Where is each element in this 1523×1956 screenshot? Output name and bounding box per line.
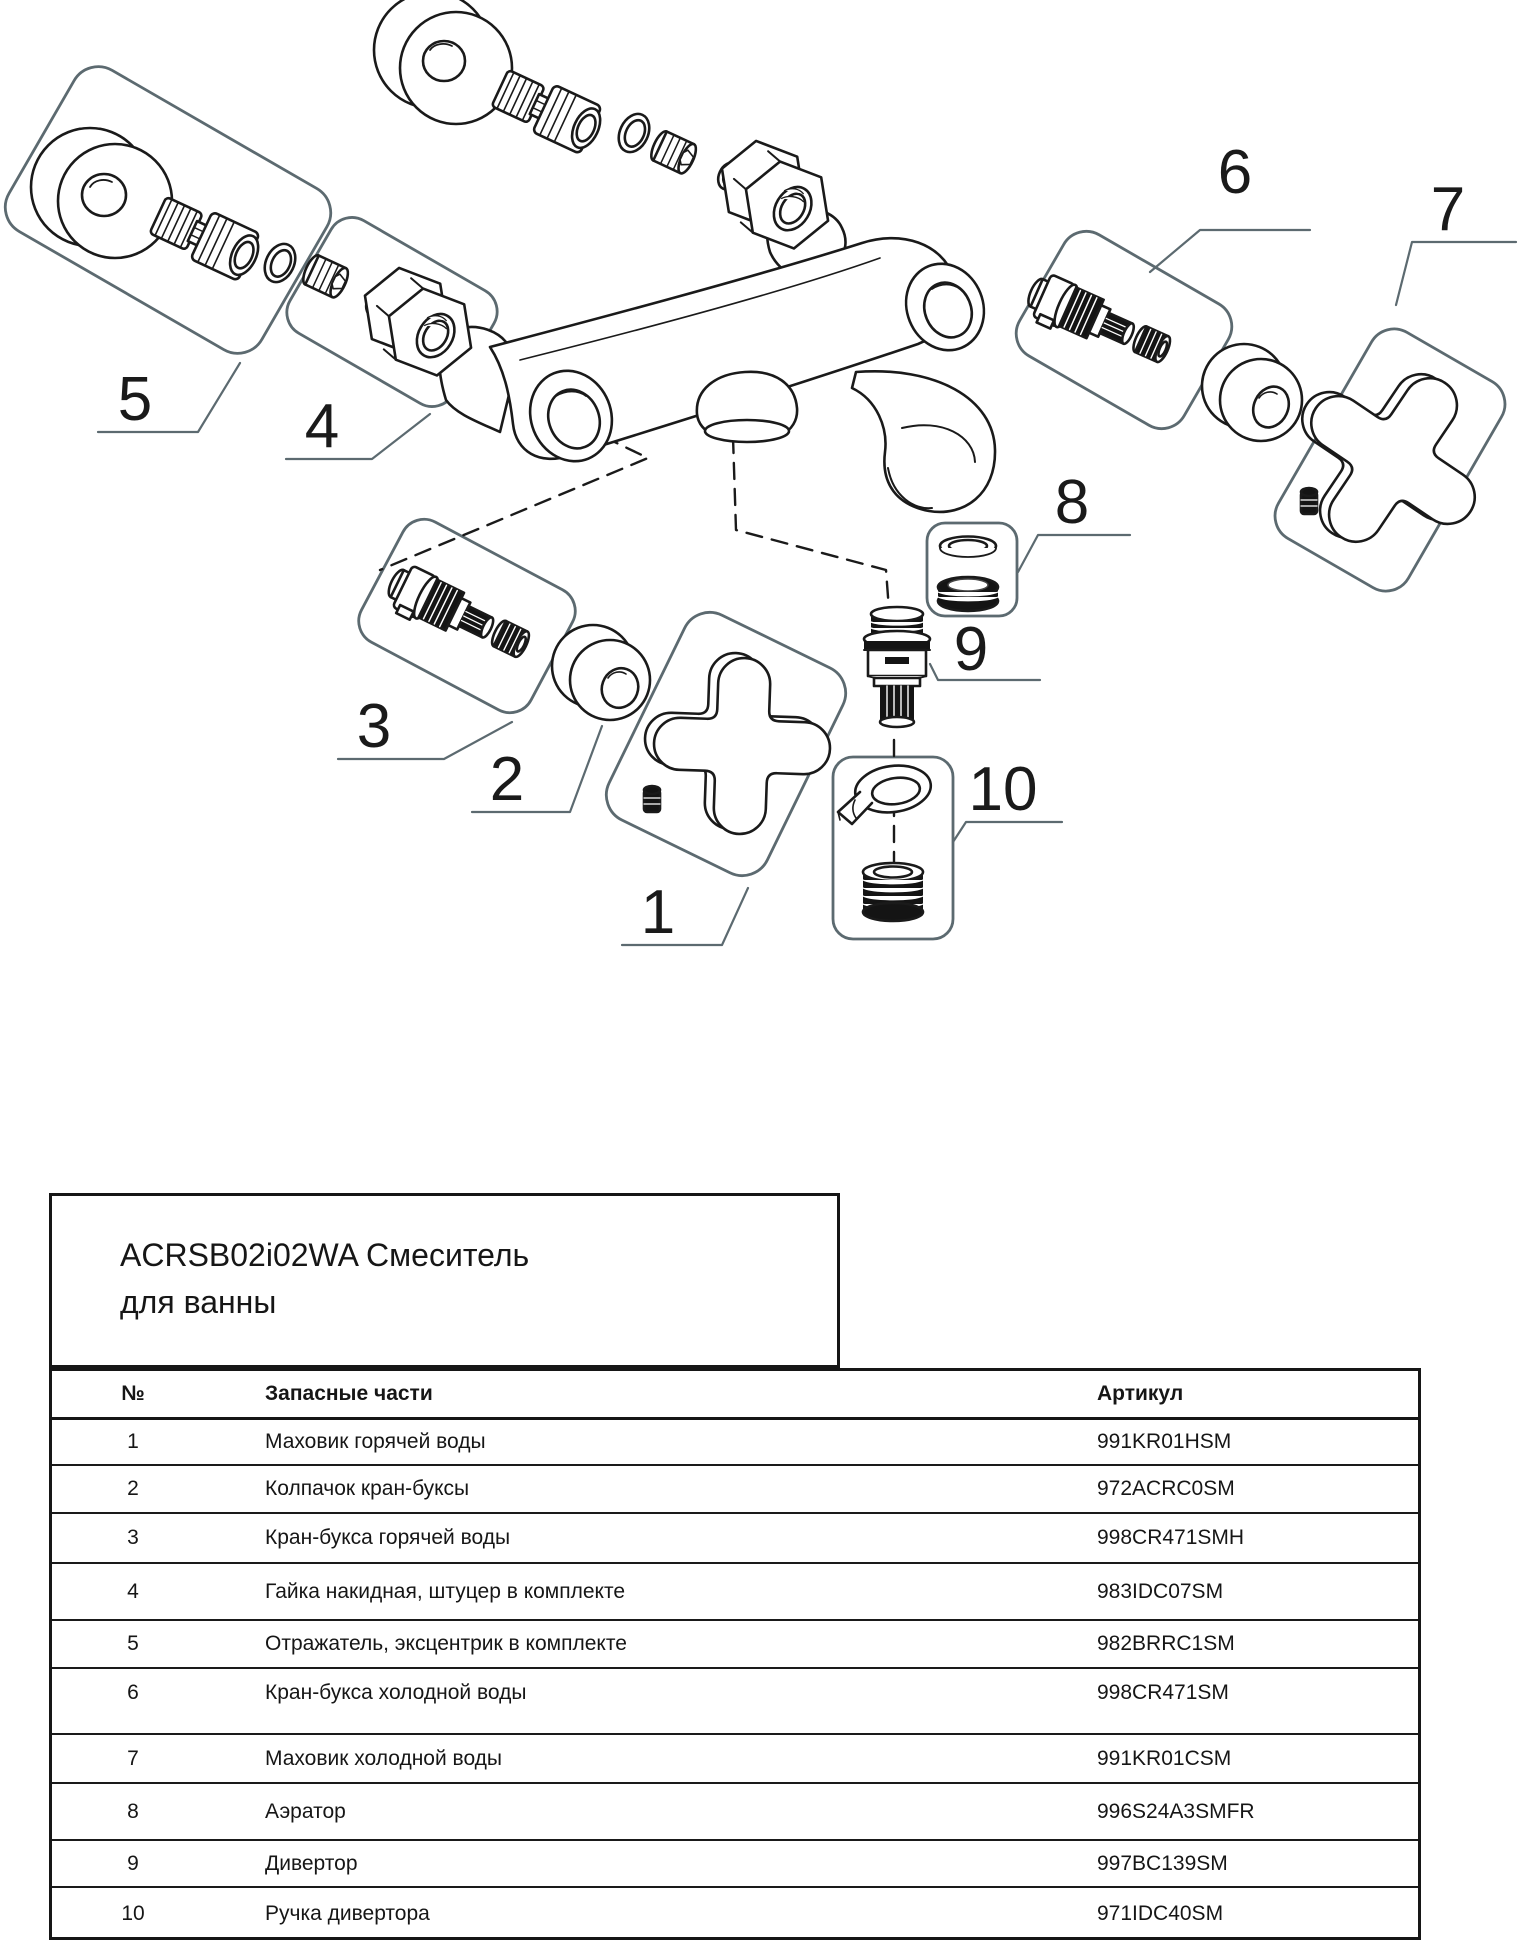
eccentric-5 <box>147 191 266 283</box>
diverter-handle <box>838 761 934 824</box>
table-row: 3 Кран-букса горячей воды 998CR471SMH <box>52 1512 1418 1562</box>
row-num: 5 <box>52 1632 214 1656</box>
spec-sheet-page: 1 2 3 4 5 6 7 8 9 10 ACRSB02i02WA Смесит… <box>0 0 1523 1956</box>
callout-10: 10 <box>969 755 1038 824</box>
table-row: 1 Маховик горячей воды 991KR01HSM <box>52 1417 1418 1464</box>
row-num: 6 <box>52 1669 214 1705</box>
table-row: 4 Гайка накидная, штуцер в комплекте 983… <box>52 1562 1418 1619</box>
gasket-top <box>613 109 655 157</box>
callout-2: 2 <box>490 745 524 814</box>
callout-7: 7 <box>1431 175 1465 244</box>
diverter-handle-group <box>838 761 934 921</box>
callout-6: 6 <box>1218 138 1252 207</box>
row-num: 10 <box>52 1902 214 1926</box>
callout-9: 9 <box>954 615 988 684</box>
handle-cold <box>1255 327 1522 589</box>
parts-table: № Запасные части Артикул 1 Маховик горяч… <box>49 1368 1421 1940</box>
table-row: 9 Дивертор 997BC139SM <box>52 1839 1418 1886</box>
escutcheon-5 <box>31 128 172 258</box>
row-num: 7 <box>52 1747 214 1771</box>
row-part: Маховик холодной воды <box>214 1747 1097 1771</box>
cartridge-hot <box>380 560 536 670</box>
cap-2 <box>552 625 650 720</box>
handle-screw-7 <box>1301 488 1317 514</box>
body-spout <box>852 371 995 512</box>
aerator <box>938 537 998 612</box>
row-part: Дивертор <box>214 1852 1097 1876</box>
row-sku: 972ACRC0SM <box>1097 1477 1418 1501</box>
cartridge-cold <box>1020 269 1176 375</box>
exploded-diagram: 1 2 3 4 5 6 7 8 9 10 <box>0 0 1523 1160</box>
row-part: Маховик горячей воды <box>214 1430 1097 1454</box>
table-row: 6 Кран-букса холодной воды 998CR471SM <box>52 1667 1418 1733</box>
eccentric-top <box>489 64 608 156</box>
row-num: 2 <box>52 1477 214 1501</box>
header-part: Запасные части <box>214 1382 1097 1406</box>
product-title-line2: для ванны <box>120 1279 837 1326</box>
row-sku: 983IDC07SM <box>1097 1580 1418 1604</box>
callout-5: 5 <box>118 365 152 434</box>
row-sku: 971IDC40SM <box>1097 1902 1418 1926</box>
row-part: Аэратор <box>214 1800 1097 1824</box>
row-sku: 997BC139SM <box>1097 1852 1418 1876</box>
row-part: Кран-букса холодной воды <box>214 1669 1097 1705</box>
header-sku: Артикул <box>1097 1382 1418 1406</box>
product-title-box: ACRSB02i02WA Смеситель для ванны <box>49 1193 840 1368</box>
row-part: Ручка дивертора <box>214 1902 1097 1926</box>
product-title-line1: ACRSB02i02WA Смеситель <box>120 1232 837 1279</box>
handle-screw-1 <box>644 786 660 812</box>
row-part: Отражатель, эксцентрик в комплекте <box>214 1632 1097 1656</box>
row-sku: 991KR01CSM <box>1097 1747 1418 1771</box>
aerator-washer <box>940 537 996 558</box>
table-row: 10 Ручка дивертора 971IDC40SM <box>52 1886 1418 1940</box>
row-part: Колпачок кран-буксы <box>214 1477 1097 1501</box>
table-row: 2 Колпачок кран-буксы 972ACRC0SM <box>52 1464 1418 1512</box>
row-num: 3 <box>52 1526 214 1550</box>
row-num: 4 <box>52 1580 214 1604</box>
diverter-cartridge <box>864 607 930 727</box>
fitting-plug-top <box>648 129 700 176</box>
header-num: № <box>52 1382 214 1406</box>
aerator-insert <box>938 577 998 611</box>
diverter-port <box>705 420 789 442</box>
table-row: 5 Отражатель, эксцентрик в комплекте 982… <box>52 1619 1418 1667</box>
row-sku: 998CR471SMH <box>1097 1526 1418 1550</box>
diverter-adapter <box>863 863 923 921</box>
handle-hot <box>642 650 833 837</box>
row-sku: 996S24A3SMFR <box>1097 1800 1418 1824</box>
row-part: Гайка накидная, штуцер в комплекте <box>214 1580 1097 1604</box>
callout-1: 1 <box>641 878 675 947</box>
escutcheon-top <box>374 0 512 124</box>
row-num: 8 <box>52 1800 214 1824</box>
top-inlet-chain <box>374 0 836 252</box>
callout-3: 3 <box>357 692 391 761</box>
parts-table-header: № Запасные части Артикул <box>52 1371 1418 1417</box>
faucet-body <box>439 208 996 512</box>
row-sku: 982BRRC1SM <box>1097 1632 1418 1656</box>
row-part: Кран-букса горячей воды <box>214 1526 1097 1550</box>
row-num: 9 <box>52 1852 214 1876</box>
row-num: 1 <box>52 1430 214 1454</box>
callout-4: 4 <box>305 392 339 461</box>
callout-8: 8 <box>1055 468 1089 537</box>
table-row: 8 Аэратор 996S24A3SMFR <box>52 1782 1418 1839</box>
row-sku: 991KR01HSM <box>1097 1430 1418 1454</box>
table-row: 7 Маховик холодной воды 991KR01CSM <box>52 1733 1418 1782</box>
cap-cold <box>1202 344 1302 441</box>
row-sku: 998CR471SM <box>1097 1669 1418 1705</box>
